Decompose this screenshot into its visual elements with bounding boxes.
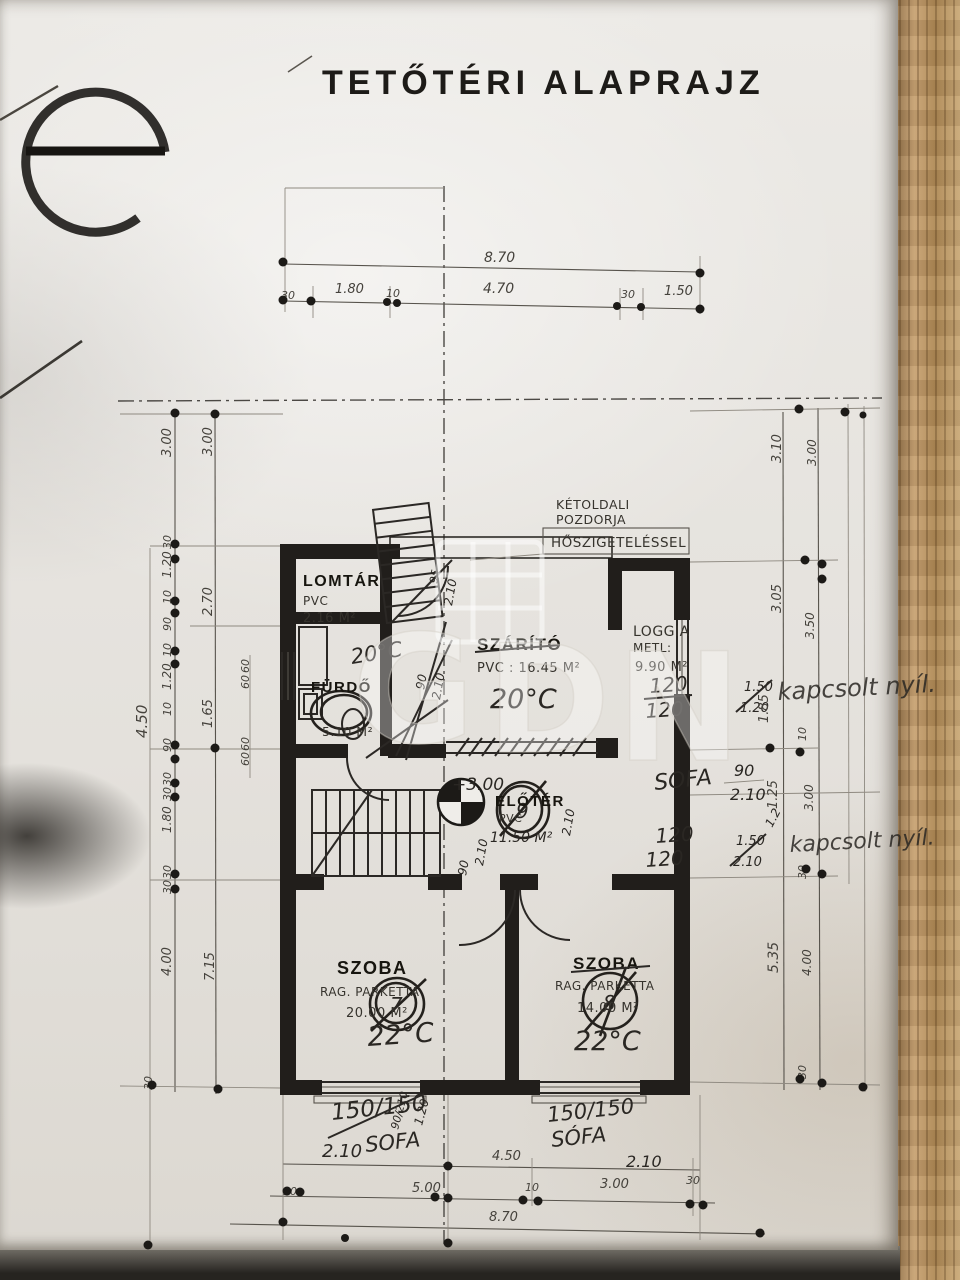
sofa-br-size: 150/150 [546,1094,635,1127]
dims-right: 3.10 3.05 1.85 1.25 5.35 3.00 3.50 10 3.… [757,434,819,1079]
dim-bottom-3: 3.00 [600,1177,629,1192]
dim-top-2: 10 [386,287,400,300]
eloter-area: 11.50 M² [490,830,553,846]
lomtar-area: 2.16 M² [303,611,356,626]
door-size-e: 2.10 [472,837,490,866]
szoba-right-temp: 22°C [574,1026,641,1057]
note-line1: KÉTOLDALI [556,497,630,512]
win2-w1: 120 [655,821,695,848]
dim-bottom-total: 8.70 [489,1210,518,1225]
dim-left-s0: 60 [239,659,252,673]
dim-right-o1: 3.05 [770,584,785,613]
dim-left-o7: 10 [161,702,174,716]
szoba-left-floor: RAG. PARKETTA [320,985,420,999]
stamp-letter-e [0,56,312,398]
note-line3: HŐSZIGETELÉSSEL [551,533,686,551]
lomtar-floor: PVC [303,594,328,608]
dim-right-o3: 1.25 [766,780,781,809]
watermark-letter-n: N [616,622,742,796]
dim-top-3: 4.70 [483,281,514,297]
dim-left-i1: 2.70 [201,587,216,616]
dim-top-1: 1.80 [335,282,364,297]
dim-left-i3: 7.15 [203,952,218,981]
dim-left-o4: 90 [161,617,174,631]
dim-left-s2: 60 [239,737,252,751]
szoba-right-floor: RAG. PARKETTA [555,979,655,993]
eloter-name: ELŐTÉR [495,792,565,810]
dim-left-i0: 3.00 [201,427,216,456]
dim-top-total: 8.70 [484,250,515,266]
eloter-floor: PVC [499,812,522,825]
szoba-left-name: SZOBA [337,958,408,978]
note-line2: POZDORJA [556,512,626,527]
dim-left-far: 4.50 [133,705,151,738]
photo-of-floor-plan: TETŐTÉRI ALAPRAJZ [0,0,960,1280]
dim-left-o14: 4.00 [160,947,175,976]
dim-right-i0: 3.00 [805,439,819,466]
sofa-bl-label: SOFA [364,1127,421,1157]
watermark-letter-d: D [486,614,611,788]
szoba-left-temp: 22°C [366,1017,435,1053]
page-title: TETŐTÉRI ALAPRAJZ [322,64,765,102]
szoba-left-area: 20.00 M² [346,1006,408,1021]
door-size-a: 2.10 [441,577,459,606]
lomtar-name: LOMTÁR [303,571,380,590]
sofa-bl-w: 2.10 [322,1141,362,1162]
dim-bottom-inner: 4.50 [492,1149,521,1164]
dim-left-s3: 60 [239,752,252,766]
sofa-br-w: 2.10 [626,1152,662,1171]
dim-right-o0: 3.10 [770,434,785,463]
win2-s2: 2.10 [733,855,762,870]
dim-right-i5: 4.00 [800,949,814,976]
dim-left-i2: 1.65 [201,699,216,728]
dims-top: 8.70 30 1.80 10 4.70 30 1.50 [281,250,693,302]
dim-right-i2: 10 [796,727,809,741]
dim-left-o11: 1.80 [160,806,174,833]
dim-bottom-4: 30 [686,1174,700,1187]
win2-w2: 120 [645,845,685,872]
win2-note: kapcsolt nyíl. [789,825,935,858]
dim-left-s1: 60 [239,675,252,689]
dim-top-5: 1.50 [664,284,693,299]
sofa-br-label: SÓFA [550,1121,607,1152]
dim-right-o2: 1.85 [757,694,772,723]
floor-plan-drawing: TETŐTÉRI ALAPRAJZ [0,0,960,1280]
stairs-lower [312,790,440,876]
dim-right-i3: 3.00 [802,784,816,811]
door-size-g: 2.10 [559,807,577,836]
dim-left-o2: 1.20 [160,551,174,578]
dim-bottom-2: 10 [525,1181,539,1194]
watermark-letter-g: G [352,604,475,778]
scan-artifact-line-2 [0,341,82,398]
door-size-f: 90 [455,859,472,877]
dims-left: 3.00 30 1.20 10 90 10 1.20 10 90 30 30 1… [133,427,252,1090]
dim-right-i1: 3.50 [803,612,817,639]
dim-left-o0: 3.00 [160,428,175,457]
szoba-right-area: 14.00 M² [577,1001,639,1016]
dim-top-4: 30 [621,288,635,301]
dim-right-o4: 5.35 [766,942,782,973]
win1-note: kapcsolt nyíl. [777,670,937,706]
